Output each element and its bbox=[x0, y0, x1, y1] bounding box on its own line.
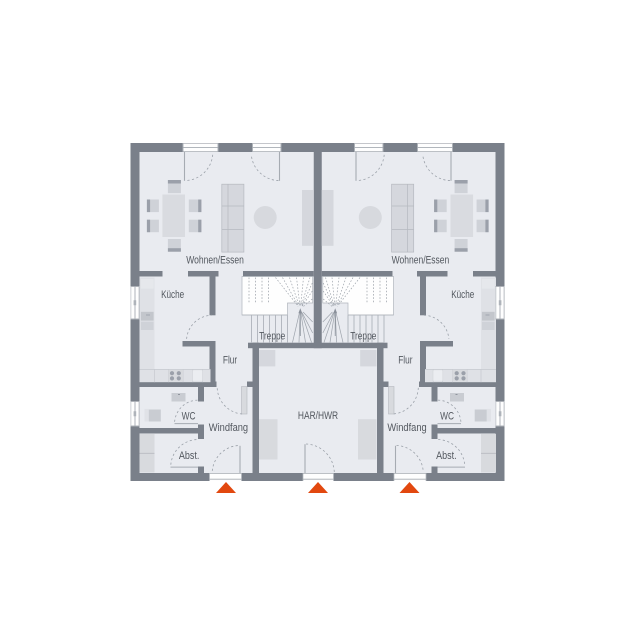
svg-text:Windfang: Windfang bbox=[387, 422, 426, 434]
svg-text:WC: WC bbox=[182, 411, 196, 423]
svg-text:Abst.: Abst. bbox=[436, 450, 457, 462]
svg-text:Flur: Flur bbox=[223, 355, 238, 367]
svg-text:Wohnen/Essen: Wohnen/Essen bbox=[186, 254, 244, 266]
svg-text:Flur: Flur bbox=[398, 355, 413, 367]
svg-text:Treppe: Treppe bbox=[259, 331, 285, 343]
svg-text:Küche: Küche bbox=[451, 289, 474, 301]
svg-text:WC: WC bbox=[440, 411, 454, 423]
svg-text:Küche: Küche bbox=[161, 289, 184, 301]
svg-text:Wohnen/Essen: Wohnen/Essen bbox=[392, 254, 450, 266]
svg-text:Abst.: Abst. bbox=[179, 450, 200, 462]
svg-text:HAR/HWR: HAR/HWR bbox=[298, 410, 338, 422]
svg-text:Windfang: Windfang bbox=[209, 422, 248, 434]
svg-text:Treppe: Treppe bbox=[350, 331, 376, 343]
